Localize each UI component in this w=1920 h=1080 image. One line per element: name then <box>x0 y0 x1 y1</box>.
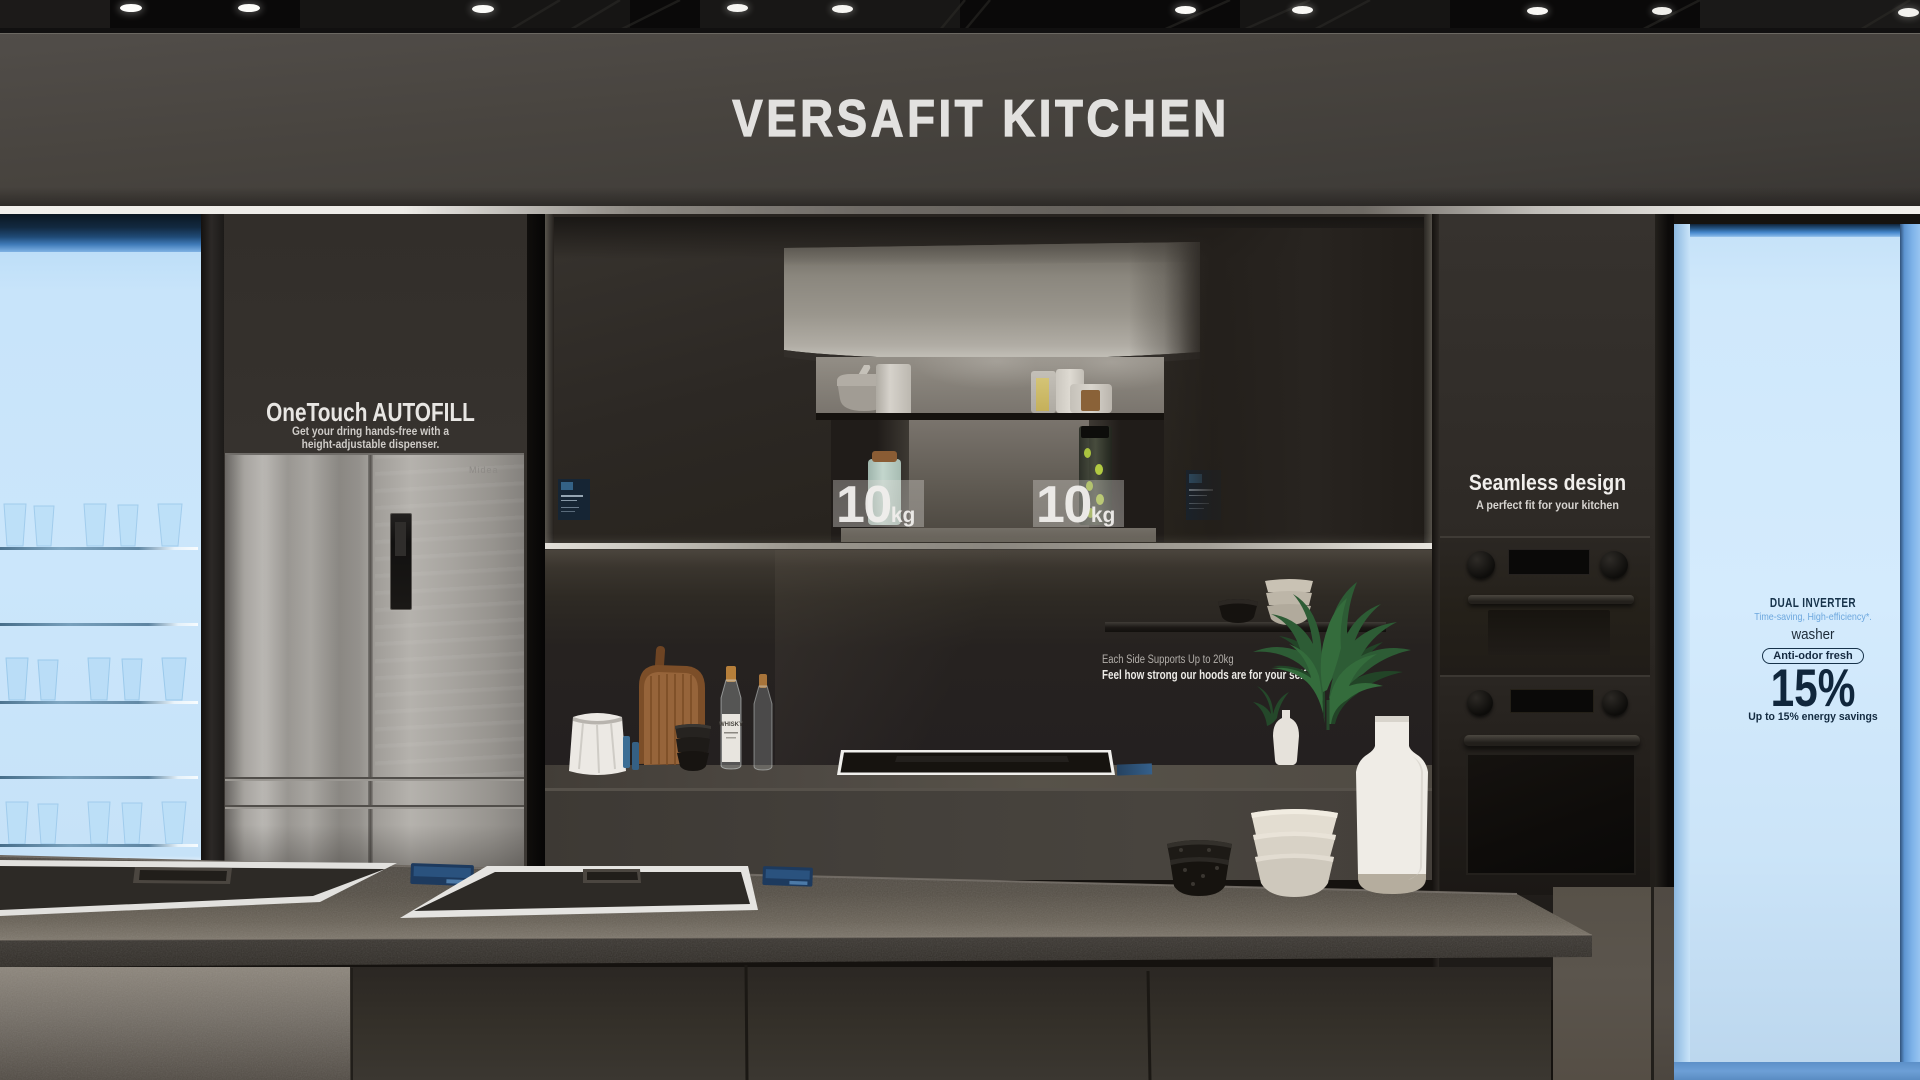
svg-text:WHISKY: WHISKY <box>719 722 743 728</box>
